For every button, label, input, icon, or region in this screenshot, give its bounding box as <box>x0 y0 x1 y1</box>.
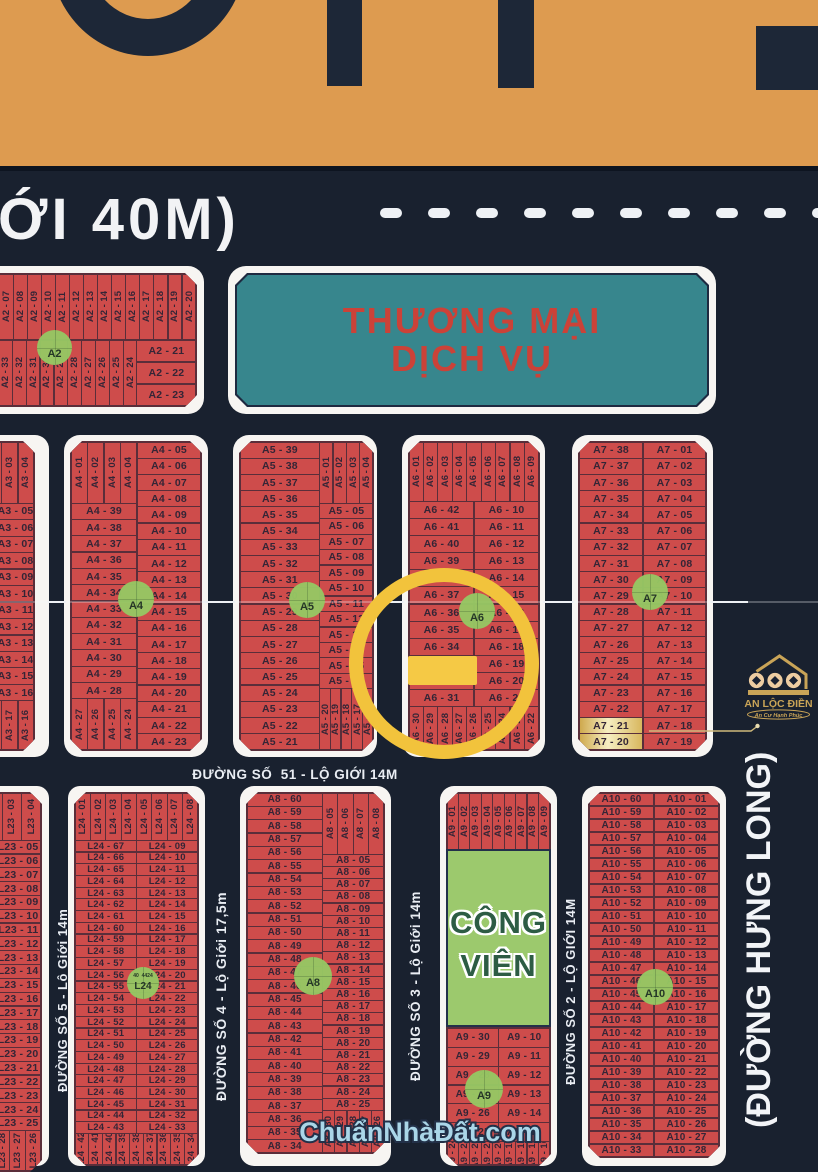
svg-text:AN LỘC ĐIỀN: AN LỘC ĐIỀN <box>744 697 812 710</box>
svg-text:ChuẩnNhàĐất.com: ChuẩnNhàĐất.com <box>299 1117 541 1147</box>
svg-text:An Cư Hạnh Phúc: An Cư Hạnh Phúc <box>754 713 804 719</box>
